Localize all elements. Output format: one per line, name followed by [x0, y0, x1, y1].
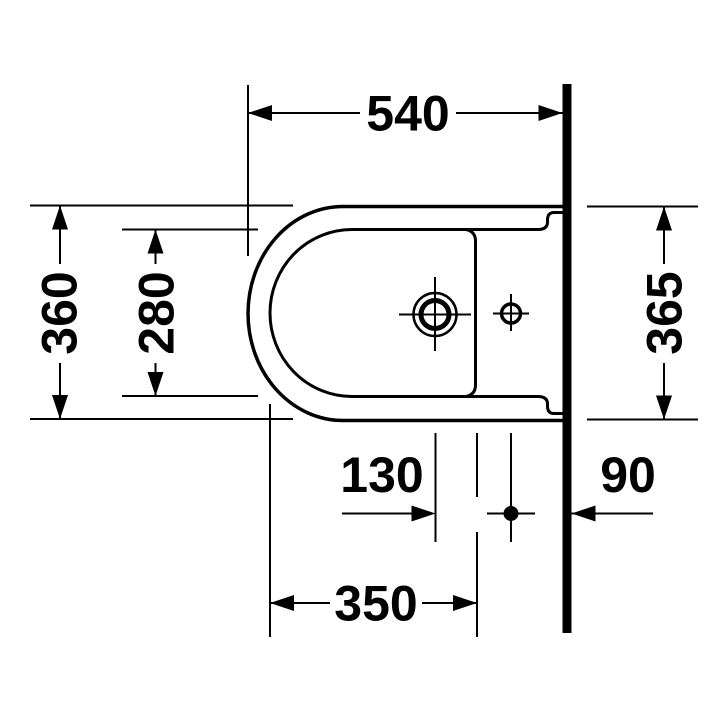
dimension-label-365: 365 — [637, 271, 693, 354]
dimension-350: 350 — [270, 404, 477, 637]
reference-dot — [504, 506, 519, 521]
arrowhead-up — [52, 206, 68, 230]
arrowhead-right — [539, 105, 563, 121]
arrowhead-left — [270, 595, 294, 611]
bidet-dimension-drawing: 540 360 280 365 130 — [0, 0, 721, 721]
dimension-label-130: 130 — [340, 447, 423, 503]
arrowhead-left — [248, 105, 272, 121]
dimension-label-90: 90 — [600, 447, 656, 503]
dimension-130: 130 — [340, 433, 435, 542]
dimension-label-360: 360 — [32, 271, 88, 354]
dimension-label-540: 540 — [366, 86, 449, 142]
arrowhead-right — [453, 595, 477, 611]
dimension-90: 90 — [572, 447, 656, 522]
dimension-365: 365 — [587, 207, 698, 420]
arrowhead-down — [656, 396, 672, 420]
dimension-280: 280 — [122, 230, 258, 397]
arrowhead-down — [52, 395, 68, 419]
dimension-label-350: 350 — [334, 576, 417, 632]
arrowhead-down — [148, 372, 164, 396]
basin-divider-line — [466, 230, 476, 397]
dimension-label-280: 280 — [129, 271, 185, 354]
arrowhead-up — [148, 230, 164, 254]
arrowhead-right — [412, 506, 436, 522]
arrowhead-left — [572, 506, 596, 522]
technical-drawing-canvas: 540 360 280 365 130 — [0, 0, 721, 721]
reference-point — [487, 433, 535, 542]
faucet-hole — [399, 277, 471, 351]
mounting-hole — [493, 294, 529, 331]
wall-line — [563, 84, 572, 633]
arrowhead-up — [656, 207, 672, 231]
